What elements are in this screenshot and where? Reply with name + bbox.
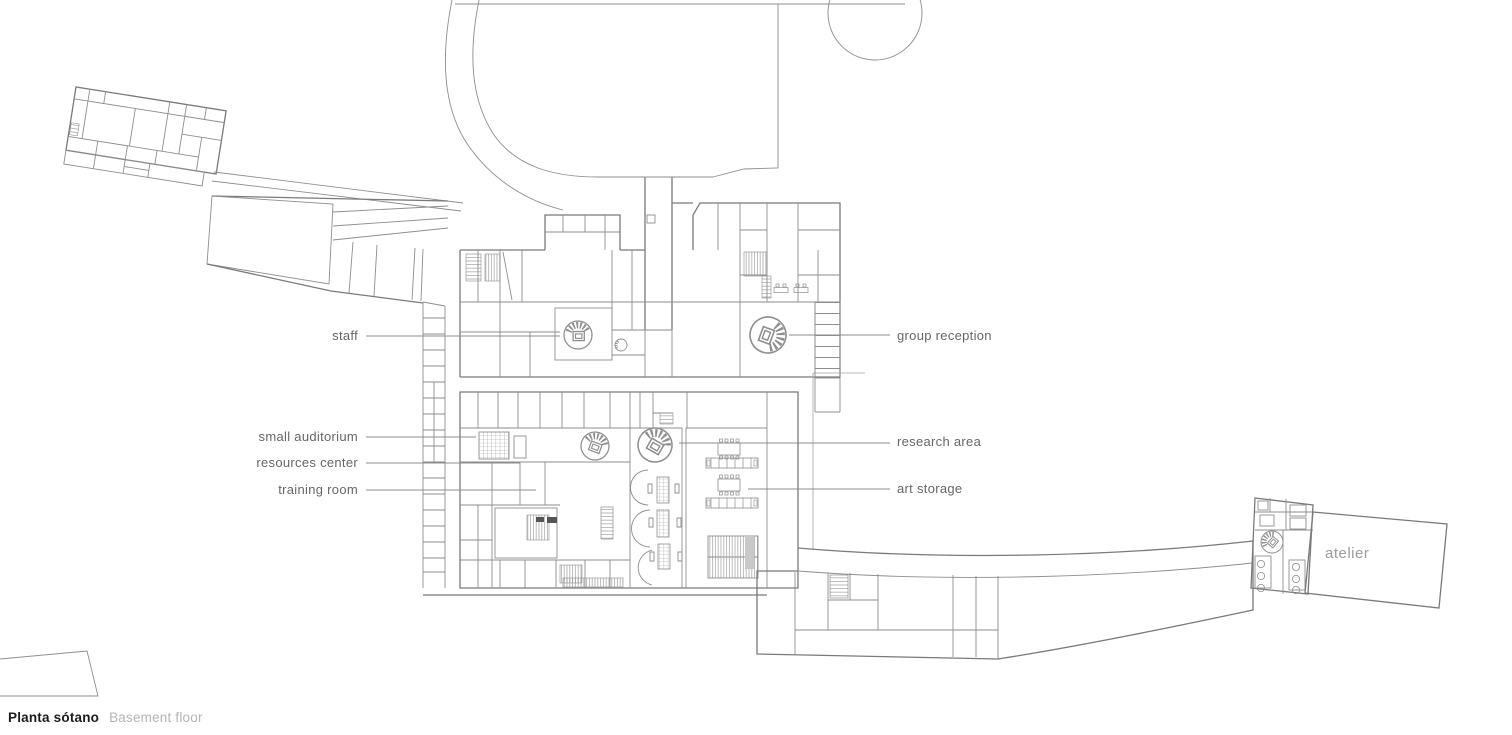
lower-spiral-stair bbox=[577, 428, 613, 464]
floor-plan-drawing bbox=[0, 0, 1512, 735]
small-auditorium-seating bbox=[479, 432, 509, 459]
shelf-row bbox=[706, 458, 758, 468]
site-boundary-and-path bbox=[445, 0, 922, 210]
caption-title-en: Basement floor bbox=[109, 710, 203, 725]
caption-title-es: Planta sótano bbox=[8, 710, 99, 725]
west-wing bbox=[207, 196, 448, 303]
group-reception-spiral-stair bbox=[745, 312, 791, 358]
desk-dark bbox=[547, 517, 557, 523]
top-left-building bbox=[64, 87, 226, 188]
label-training-room: training room bbox=[208, 483, 358, 497]
floor-plan-sheet: staff group reception small auditorium r… bbox=[0, 0, 1512, 735]
core-gray-fill bbox=[745, 536, 754, 569]
label-staff: staff bbox=[208, 329, 358, 343]
upper-main-block bbox=[460, 177, 840, 412]
reading-table bbox=[718, 475, 740, 495]
research-area-spiral-stair bbox=[632, 422, 678, 468]
reading-table bbox=[718, 439, 740, 459]
desk-dark bbox=[536, 517, 544, 522]
caption: Planta sótano Basement floor bbox=[8, 710, 203, 725]
label-research-area: research area bbox=[897, 435, 981, 449]
site-circle bbox=[828, 0, 922, 60]
shelf-row bbox=[706, 498, 758, 508]
label-resources-center: resources center bbox=[208, 456, 358, 470]
label-group-reception: group reception bbox=[897, 329, 992, 343]
east-band-stair bbox=[830, 575, 848, 598]
label-art-storage: art storage bbox=[897, 482, 962, 496]
left-room-strip bbox=[423, 302, 445, 588]
site-fragment bbox=[0, 651, 98, 696]
label-small-auditorium: small auditorium bbox=[208, 430, 358, 444]
label-atelier: atelier bbox=[1325, 545, 1369, 562]
staff-spiral-stair bbox=[564, 321, 592, 349]
reception-stair bbox=[815, 302, 840, 378]
lower-main-block bbox=[423, 392, 798, 595]
link-corridor bbox=[212, 172, 463, 211]
east-band bbox=[745, 536, 1253, 659]
terrain-line bbox=[813, 373, 865, 549]
